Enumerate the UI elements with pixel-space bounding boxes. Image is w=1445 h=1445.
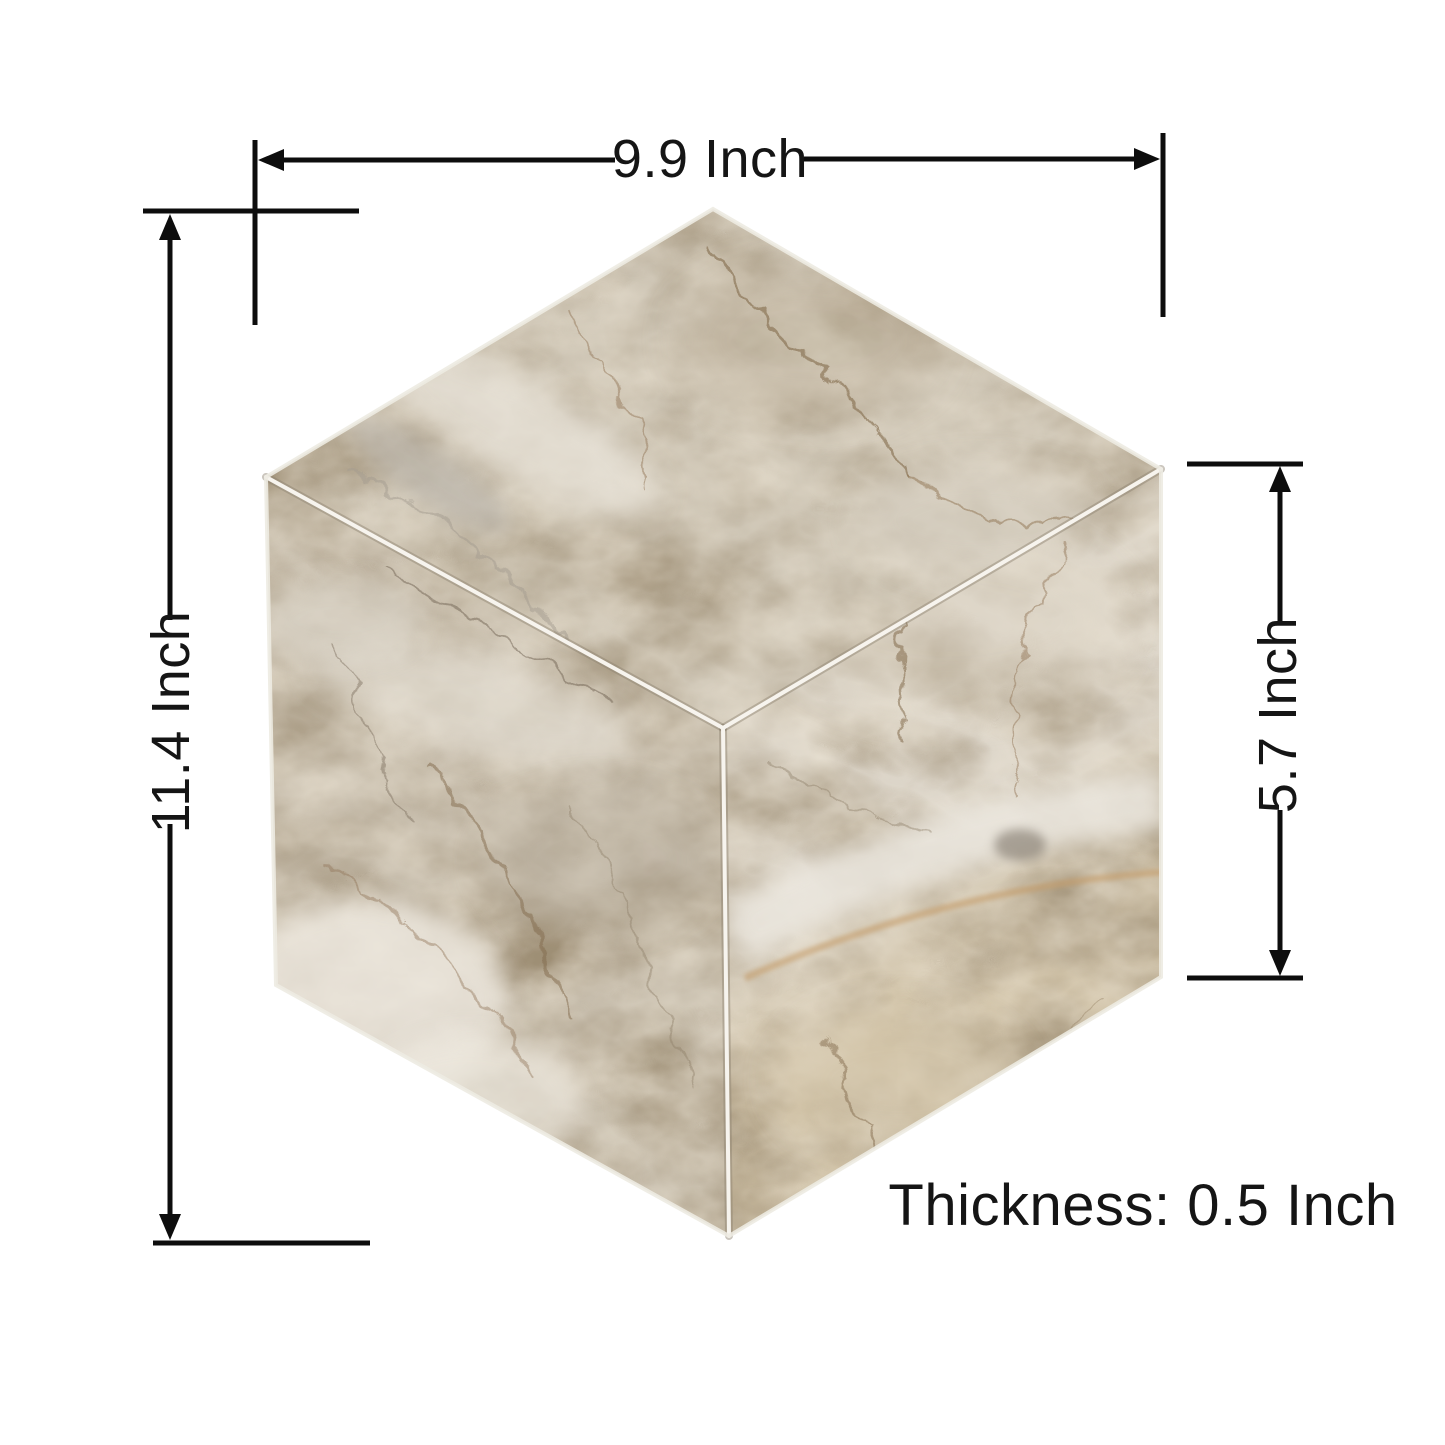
arrow-down-icon xyxy=(159,1214,181,1240)
arrow-left-icon xyxy=(258,149,284,171)
height-dimension-label: 11.4 Inch xyxy=(144,611,198,834)
thickness-label: Thickness: 0.5 Inch xyxy=(888,1177,1397,1235)
width-dimension-label: 9.9 Inch xyxy=(612,132,808,186)
arrow-up-icon xyxy=(1269,466,1291,492)
arrow-up-icon xyxy=(159,214,181,240)
arrow-right-icon xyxy=(1134,148,1160,170)
arrow-down-icon xyxy=(1269,950,1291,976)
product-dimension-diagram: 9.9 Inch 11.4 Inch 5.7 Inch Thickness: 0… xyxy=(0,0,1445,1445)
marble-tile xyxy=(230,209,1165,1236)
side-dimension-label: 5.7 Inch xyxy=(1251,617,1305,813)
